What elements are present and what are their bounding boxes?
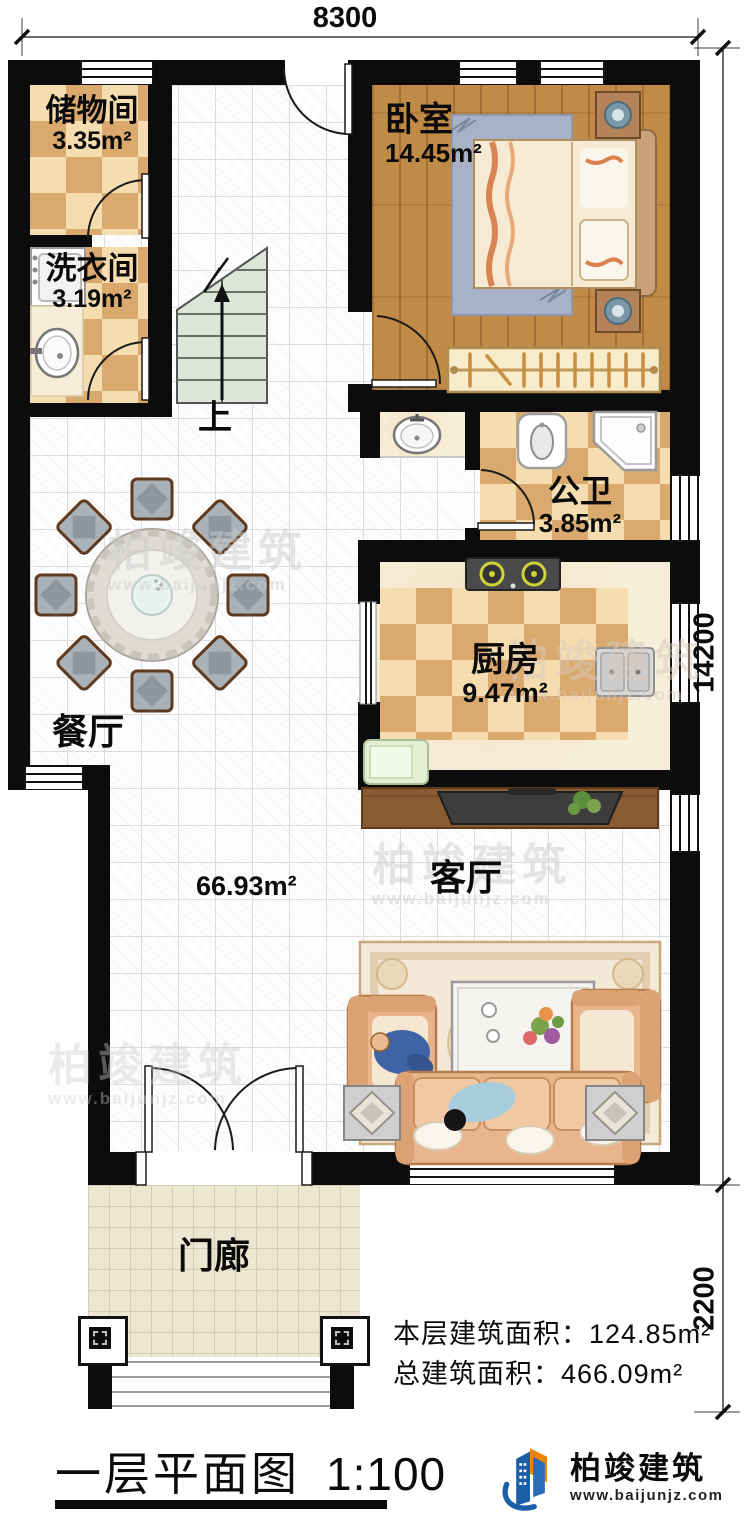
- hall-area-label: 66.93m²: [196, 872, 297, 902]
- storage-name: 储物间: [32, 94, 152, 128]
- brand-name: 柏竣建筑: [570, 1453, 723, 1484]
- floor-plan-canvas: 柏竣建筑 www.baijunjz.com 柏竣建筑 www.baijunjz.…: [0, 0, 750, 1530]
- laundry-door-arc: [88, 342, 146, 400]
- bedroom-area: 14.45m²: [385, 139, 482, 168]
- lazy-susan: [132, 575, 172, 615]
- hall-top-door-leaf: [345, 64, 352, 134]
- entry-door-left-leaf: [145, 1066, 152, 1152]
- storage-area: 3.35m²: [32, 128, 152, 156]
- side-table-left: [344, 1086, 400, 1140]
- laundry-name: 洗衣间: [32, 252, 152, 286]
- storage-door-leaf: [142, 174, 149, 238]
- cushion-2: [506, 1126, 554, 1154]
- brand-logo-block: 柏竣建筑 www.baijunjz.com: [498, 1444, 723, 1512]
- pillow-2: [580, 220, 628, 280]
- dim-top-value: 8300: [295, 2, 395, 35]
- wardrobe: [448, 348, 660, 392]
- title-underline: [55, 1500, 387, 1509]
- storage-door-arc: [88, 180, 146, 238]
- shower-tray: [594, 412, 656, 470]
- dim-right-main-value: 14200: [689, 603, 722, 703]
- staircase: [175, 248, 269, 403]
- hall-top-door-arc: [284, 68, 348, 134]
- bathroom-name: 公卫: [505, 474, 655, 509]
- side-table-right: [586, 1086, 644, 1140]
- stairs-up-label: 上: [198, 400, 232, 437]
- bathroom-fixtures: [394, 412, 656, 470]
- kitchen-label: 厨房 9.47m²: [425, 642, 585, 709]
- storage-label: 储物间 3.35m²: [32, 94, 152, 156]
- living-room-furniture: [344, 788, 660, 1164]
- entry-jamb-left: [136, 1152, 146, 1185]
- porch-column-left: [78, 1316, 128, 1366]
- bedroom-name: 卧室: [385, 102, 482, 139]
- entry-door-left-arc: [152, 1068, 233, 1150]
- bedroom-label: 卧室 14.45m²: [385, 102, 482, 168]
- bathroom-label: 公卫 3.85m²: [505, 474, 655, 538]
- plan-title-text: 一层平面图: [55, 1448, 300, 1500]
- entry-jamb-right: [302, 1152, 312, 1185]
- laundry-faucet: [30, 348, 42, 354]
- dining-label: 餐厅: [52, 712, 124, 752]
- bedroom-door-leaf: [372, 380, 436, 387]
- laundry-door-leaf: [142, 338, 149, 400]
- bathroom-area: 3.85m²: [505, 509, 655, 538]
- kitchen-area: 9.47m²: [425, 679, 585, 709]
- kitchen-sliding-door: [360, 602, 376, 704]
- total-area-stat: 总建筑面积：466.09m²: [393, 1352, 683, 1391]
- plan-scale: 1:100: [326, 1448, 446, 1500]
- kitchen-name: 厨房: [425, 642, 585, 679]
- plan-drawing-layer: [0, 0, 750, 1530]
- plan-title: 一层平面图1:100: [55, 1438, 446, 1504]
- laundry-area: 3.19m²: [32, 286, 152, 314]
- entry-door-right-leaf: [296, 1066, 303, 1152]
- entry-door-right-arc: [215, 1068, 296, 1150]
- porch-column-right: [320, 1316, 370, 1366]
- bedroom-door-arc: [377, 316, 440, 384]
- brand-logo-icon: [498, 1444, 562, 1512]
- laundry-label: 洗衣间 3.19m²: [32, 252, 152, 314]
- dining-table-set: [36, 479, 268, 711]
- living-label: 客厅: [430, 858, 502, 898]
- floor-area-stat: 本层建筑面积：124.85m²: [393, 1312, 711, 1351]
- porch-label: 门廊: [178, 1236, 250, 1276]
- brand-site: www.baijunjz.com: [570, 1487, 723, 1504]
- pillow-1: [580, 148, 628, 208]
